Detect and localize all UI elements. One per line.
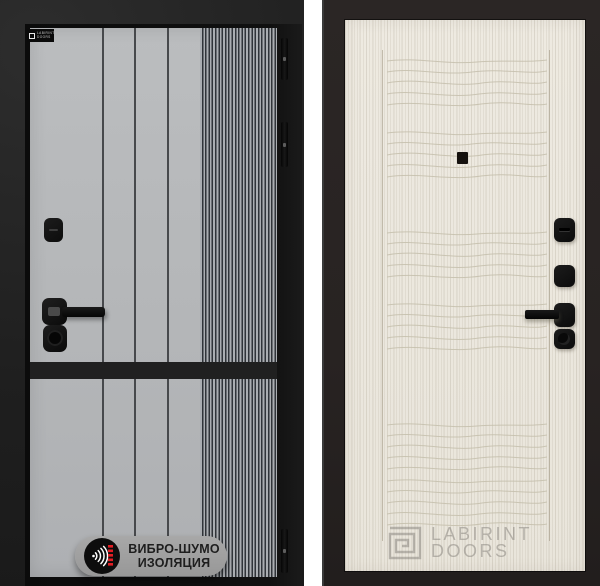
lock-cover-top bbox=[554, 218, 575, 242]
sound-insulation-icon bbox=[84, 538, 120, 574]
lock-knob bbox=[47, 330, 63, 346]
wave-texture bbox=[387, 55, 547, 111]
keyhole-square bbox=[457, 152, 468, 164]
door-product-collage: LABIRINT DOORS ВИБРО-ШУМО ИЗОЛЯЦИЯ bbox=[0, 0, 600, 586]
brand-badge: LABIRINT DOORS bbox=[27, 29, 54, 42]
wave-texture bbox=[387, 227, 547, 283]
left-door-panel bbox=[30, 28, 277, 577]
key-slot bbox=[48, 307, 60, 316]
watermark-text: LABIRINT DOORS bbox=[431, 526, 532, 560]
door-front-photo: LABIRINT DOORS ВИБРО-ШУМО ИЗОЛЯЦИЯ bbox=[0, 0, 304, 586]
right-door-panel: LABIRINT DOORS bbox=[345, 20, 585, 571]
panel-routed-line bbox=[549, 50, 550, 541]
brand-badge-line2: DOORS bbox=[37, 36, 54, 39]
lock-knob-cover bbox=[554, 329, 575, 349]
door-handle-lever bbox=[62, 307, 105, 317]
noise-insulation-label: ВИБРО-ШУМО ИЗОЛЯЦИЯ bbox=[127, 542, 221, 570]
watermark-line2: DOORS bbox=[431, 543, 532, 560]
panel-routed-line bbox=[382, 50, 383, 541]
lock-cylinder-cover bbox=[44, 218, 63, 242]
noise-insulation-line1: ВИБРО-ШУМО bbox=[127, 542, 221, 556]
cylinder-slot bbox=[49, 229, 58, 231]
panel-groove bbox=[134, 28, 136, 577]
lock-slot bbox=[559, 228, 570, 231]
lock-knob-plate bbox=[43, 325, 67, 352]
door-back-photo: LABIRINT DOORS bbox=[322, 0, 600, 586]
brand-logo-icon bbox=[29, 33, 35, 39]
left-door-black-stripe bbox=[30, 362, 277, 379]
interior-handle-lever bbox=[525, 310, 559, 319]
panel-groove bbox=[102, 28, 104, 577]
door-hinge bbox=[281, 122, 288, 167]
wave-texture bbox=[387, 419, 547, 475]
left-door-ribbed-texture bbox=[200, 28, 277, 577]
panel-groove bbox=[167, 28, 169, 577]
hinge-pin bbox=[283, 57, 286, 61]
door-hinge bbox=[281, 38, 288, 80]
labyrinth-logo-icon bbox=[387, 525, 423, 561]
brand-badge-text: LABIRINT DOORS bbox=[37, 32, 54, 39]
door-hinge bbox=[281, 529, 288, 573]
lock-cover-middle bbox=[554, 265, 575, 287]
wave-texture bbox=[387, 299, 547, 355]
interior-knob bbox=[558, 333, 570, 345]
hinge-pin bbox=[283, 143, 286, 147]
watermark: LABIRINT DOORS bbox=[387, 525, 532, 561]
noise-insulation-line2: ИЗОЛЯЦИЯ bbox=[127, 556, 221, 570]
hinge-pin bbox=[283, 549, 286, 553]
noise-insulation-badge: ВИБРО-ШУМО ИЗОЛЯЦИЯ bbox=[75, 536, 227, 576]
wave-texture bbox=[387, 475, 547, 531]
